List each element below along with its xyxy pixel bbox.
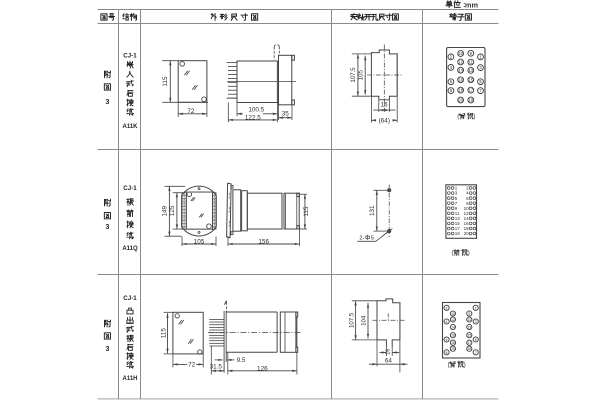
svg-text:64: 64 xyxy=(385,357,393,364)
svg-text:72: 72 xyxy=(188,362,196,369)
svg-text:20: 20 xyxy=(464,231,470,236)
svg-text:16: 16 xyxy=(385,349,391,355)
svg-text:11: 11 xyxy=(468,318,472,322)
svg-text:3: 3 xyxy=(479,65,482,70)
svg-text:15: 15 xyxy=(468,77,473,82)
svg-text:5: 5 xyxy=(371,236,374,242)
svg-text:18: 18 xyxy=(458,88,463,93)
svg-text:104: 104 xyxy=(360,315,367,326)
svg-text:13: 13 xyxy=(467,325,471,329)
svg-text:19: 19 xyxy=(468,97,473,102)
svg-text:1: 1 xyxy=(475,306,477,310)
svg-text:2: 2 xyxy=(450,54,453,59)
svg-text:2: 2 xyxy=(446,306,448,310)
svg-text:8: 8 xyxy=(446,351,448,355)
svg-text:12: 12 xyxy=(451,318,455,322)
svg-text:115: 115 xyxy=(160,328,167,339)
svg-text:31.5: 31.5 xyxy=(210,363,223,370)
svg-text:CJ-1: CJ-1 xyxy=(123,185,137,192)
svg-text:14: 14 xyxy=(458,68,463,73)
svg-text:115: 115 xyxy=(303,206,310,217)
svg-text:5: 5 xyxy=(479,79,482,84)
svg-text:): ) xyxy=(464,361,466,368)
svg-text:A11H: A11H xyxy=(122,376,137,382)
svg-text:15: 15 xyxy=(467,334,471,338)
svg-text:17: 17 xyxy=(468,88,473,93)
svg-text:107.5: 107.5 xyxy=(348,312,355,328)
svg-text:105: 105 xyxy=(194,239,205,246)
svg-text:19: 19 xyxy=(455,231,461,236)
svg-text:107.5: 107.5 xyxy=(350,67,357,83)
svg-text:CJ-1: CJ-1 xyxy=(123,295,137,302)
svg-text:156: 156 xyxy=(258,239,269,246)
svg-text:(64): (64) xyxy=(379,117,390,124)
svg-text:3: 3 xyxy=(105,99,109,106)
svg-text:3: 3 xyxy=(105,224,109,231)
svg-text:105: 105 xyxy=(358,70,365,81)
svg-text:3: 3 xyxy=(475,320,477,324)
svg-text:20: 20 xyxy=(451,347,455,351)
svg-text:131: 131 xyxy=(369,205,376,216)
svg-text:1: 1 xyxy=(479,54,482,59)
svg-text:12: 12 xyxy=(458,59,463,64)
svg-text:4: 4 xyxy=(446,320,448,324)
svg-text:A11K: A11K xyxy=(122,124,138,130)
svg-text:11: 11 xyxy=(469,60,474,65)
svg-text:126: 126 xyxy=(257,366,268,373)
svg-text:9: 9 xyxy=(470,51,473,56)
svg-text:2-: 2- xyxy=(359,236,364,242)
svg-text:3: 3 xyxy=(105,346,109,353)
svg-text:): ) xyxy=(473,113,475,120)
svg-text::: : xyxy=(463,2,465,9)
svg-text:17: 17 xyxy=(467,341,471,345)
svg-text:7: 7 xyxy=(479,88,482,93)
svg-text:8: 8 xyxy=(450,88,453,93)
svg-text:72: 72 xyxy=(187,108,195,115)
svg-text:10: 10 xyxy=(458,51,463,56)
svg-text:125: 125 xyxy=(169,205,176,216)
svg-text:19: 19 xyxy=(467,347,471,351)
svg-text:13: 13 xyxy=(468,68,473,73)
svg-text:20: 20 xyxy=(458,97,463,102)
svg-text:7: 7 xyxy=(475,351,477,355)
svg-text:mm: mm xyxy=(465,0,479,9)
svg-text:14: 14 xyxy=(451,325,455,329)
svg-text:9.5: 9.5 xyxy=(237,357,246,364)
svg-text:4: 4 xyxy=(450,65,453,70)
svg-text:16: 16 xyxy=(458,77,463,82)
svg-text:A11Q: A11Q xyxy=(122,246,138,252)
svg-text:18: 18 xyxy=(451,341,455,345)
svg-text:6: 6 xyxy=(446,338,448,342)
svg-text:CJ-1: CJ-1 xyxy=(123,53,137,60)
svg-text:16: 16 xyxy=(381,102,388,109)
svg-text:115: 115 xyxy=(162,76,169,87)
svg-text:16: 16 xyxy=(451,334,455,338)
svg-text:): ) xyxy=(468,250,470,257)
svg-text:35: 35 xyxy=(282,111,290,118)
svg-text:5: 5 xyxy=(475,338,477,342)
svg-text:122.5: 122.5 xyxy=(245,115,261,122)
svg-text:9: 9 xyxy=(468,312,470,316)
svg-text:6: 6 xyxy=(450,79,453,84)
svg-text:10: 10 xyxy=(451,312,455,316)
svg-text:149: 149 xyxy=(161,205,168,216)
